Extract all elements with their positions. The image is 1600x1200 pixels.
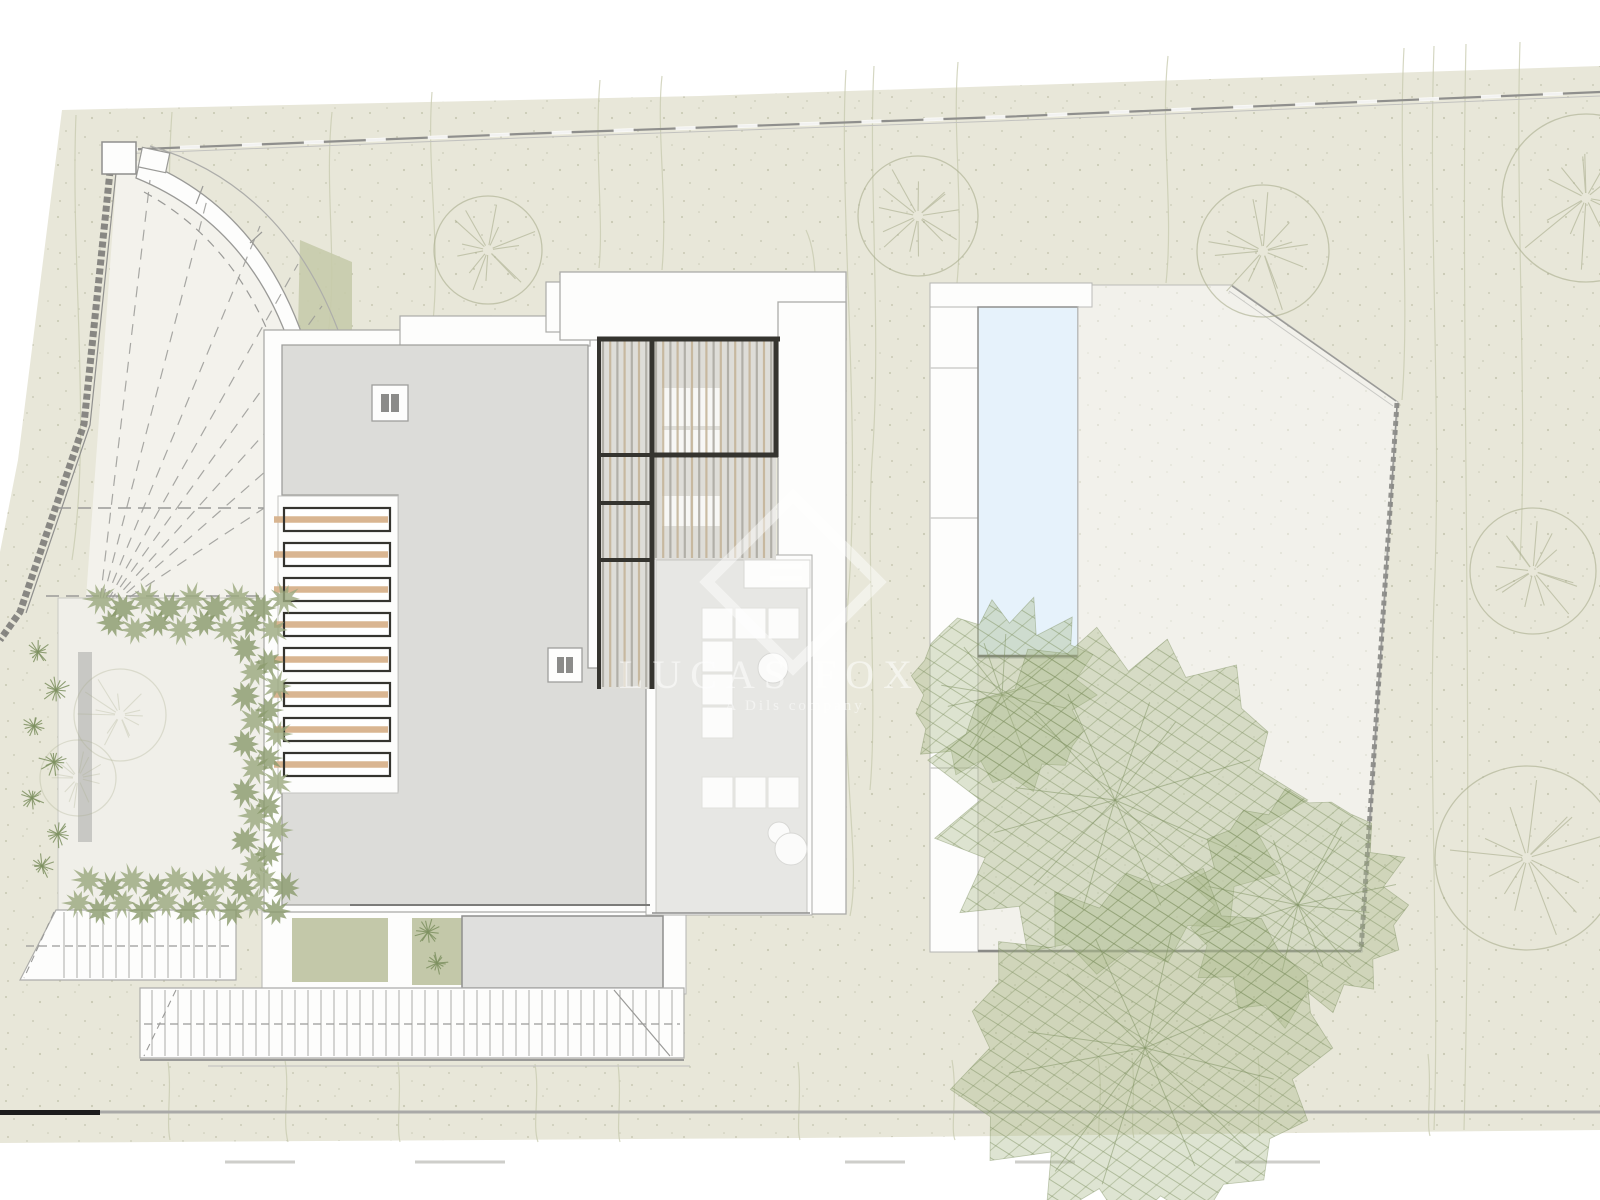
south-boundary-wall-solid (0, 1110, 100, 1115)
planter-bed-west (292, 918, 388, 982)
pool-deck-north (930, 283, 1092, 307)
site-plan-drawing: LUCAS FOX A Dils company (0, 0, 1600, 1200)
terrace-slab (462, 916, 663, 988)
gate-post (102, 142, 136, 174)
watermark-tagline-text: A Dils company (725, 698, 865, 714)
louver-zone (278, 496, 398, 793)
architectural-site-plan: LUCAS FOX A Dils company (0, 0, 1600, 1200)
main-villa (264, 272, 846, 915)
upper-stair-flight (20, 910, 236, 980)
watermark-brand-text: LUCAS FOX (619, 652, 921, 697)
long-stair-treads (152, 990, 672, 1056)
